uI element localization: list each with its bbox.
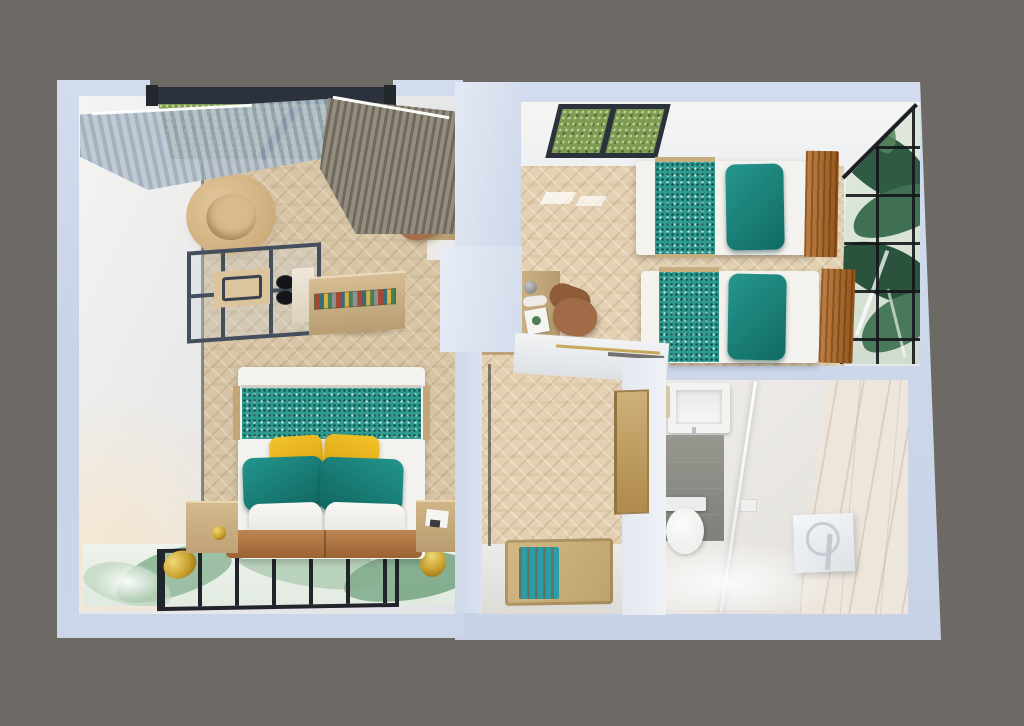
- kitchenette-board: [214, 268, 270, 308]
- mural-highlight: [93, 562, 163, 602]
- skylight-pane: [552, 109, 611, 153]
- card-plant-print: [531, 315, 541, 325]
- headboard-ribs: [818, 268, 855, 363]
- nightstand-clock: [430, 519, 441, 527]
- bed-runner: [242, 388, 421, 439]
- bathroom-floor-glow: [662, 540, 842, 610]
- nightstand-left: [186, 501, 238, 553]
- headboard-cushion: [226, 530, 422, 558]
- headboard-seam: [324, 530, 326, 558]
- bathroom-door: [614, 389, 649, 514]
- desk-knob: [524, 281, 537, 294]
- armchair-cushion: [202, 189, 261, 244]
- flush-plate: [740, 499, 757, 512]
- desk-card: [524, 307, 550, 334]
- bedside-lamp: [212, 526, 226, 540]
- bed1-leather-headboard: [804, 151, 839, 258]
- headboard-ribs: [804, 151, 839, 258]
- bed2-leather-headboard: [818, 268, 855, 363]
- skylight-pane: [606, 109, 665, 153]
- skylight-window: [545, 104, 670, 158]
- bed-rail: [423, 386, 430, 440]
- bed2-teal-pillow: [727, 274, 786, 361]
- window-end-cap: [146, 85, 158, 106]
- bed1-runner: [655, 162, 715, 254]
- divider-pillar-mid: [440, 246, 522, 352]
- bed-rail: [233, 386, 240, 440]
- kitchenette-sink-ring: [222, 275, 262, 302]
- teal-striped-rug: [519, 547, 559, 599]
- window-end-cap: [384, 85, 396, 106]
- floorplan-render: [0, 0, 1024, 726]
- bed1-teal-pillow: [725, 164, 784, 251]
- hallway-base-trim: [488, 364, 491, 546]
- basin-inner: [676, 390, 722, 424]
- wash-basin: [668, 383, 730, 433]
